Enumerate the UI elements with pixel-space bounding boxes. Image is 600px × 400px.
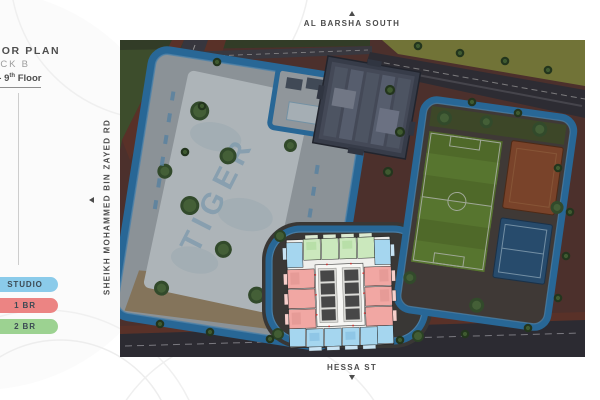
legend-label: 2 BR [14,322,36,331]
legend-pill-studio[interactable]: STUDIO [0,277,58,292]
legend-pill-2br[interactable]: 2 BR [0,319,58,334]
block-subtitle: BLOCK B [0,59,30,70]
legend-label: STUDIO [7,280,43,289]
west-arrow-icon [89,197,94,203]
vertical-divider [18,93,19,265]
street-name: AL BARSHA SOUTH [304,19,400,28]
title-underline [0,87,41,88]
floorplan-page: FLOOR PLAN BLOCK B 1st - 9th Floor STUDI… [0,0,600,400]
floor-range-label: 1st - 9th Floor [0,73,41,84]
legend-label: 1 BR [14,301,36,310]
north-arrow-icon [349,11,355,16]
legend-pill-1br[interactable]: 1 BR [0,298,58,313]
south-arrow-icon [349,375,355,380]
page-title: FLOOR PLAN [0,45,60,57]
block-b-floorplan[interactable] [282,232,398,352]
street-label-top: AL BARSHA SOUTH [252,11,452,28]
street-name: SHEIKH MOHAMMED BIN ZAYED RD [103,119,112,295]
street-label-bottom: HESSA ST [252,363,452,380]
street-name: HESSA ST [327,363,377,372]
street-label-left: SHEIKH MOHAMMED BIN ZAYED RD [103,119,112,295]
site-map-render: TIGER [120,40,585,357]
site-map: TIGER [120,40,585,357]
